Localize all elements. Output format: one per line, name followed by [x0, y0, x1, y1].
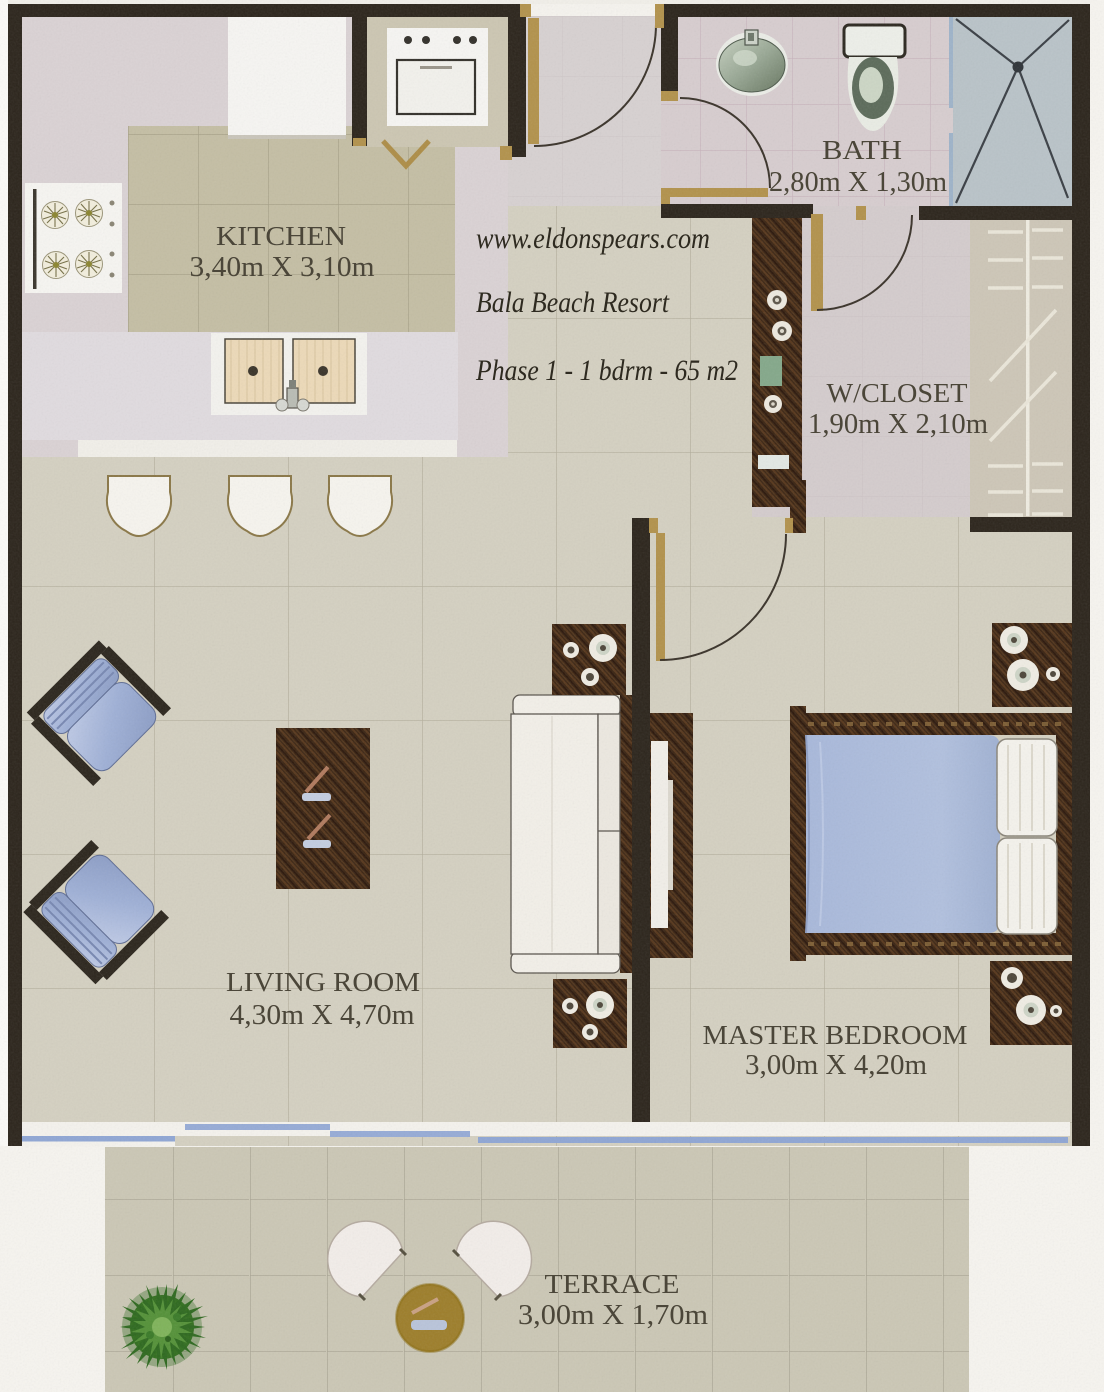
svg-text:3,40m X 3,10m: 3,40m X 3,10m: [190, 252, 375, 283]
svg-text:W/CLOSET: W/CLOSET: [827, 378, 969, 408]
svg-text:www.eldonspears.com: www.eldonspears.com: [476, 222, 710, 255]
svg-text:2,80m X 1,30m: 2,80m X 1,30m: [769, 167, 947, 198]
svg-text:Bala Beach Resort: Bala Beach Resort: [476, 286, 670, 319]
svg-text:1,90m X 2,10m: 1,90m X 2,10m: [808, 409, 988, 440]
svg-text:BATH: BATH: [822, 135, 902, 165]
svg-text:3,00m X 4,20m: 3,00m X 4,20m: [745, 1050, 927, 1081]
svg-text:TERRACE: TERRACE: [545, 1269, 680, 1299]
svg-text:LIVING ROOM: LIVING ROOM: [226, 967, 420, 997]
svg-text:MASTER BEDROOM: MASTER BEDROOM: [703, 1020, 968, 1050]
svg-text:3,00m X 1,70m: 3,00m X 1,70m: [518, 1300, 708, 1331]
svg-text:KITCHEN: KITCHEN: [216, 221, 346, 251]
svg-text:4,30m X 4,70m: 4,30m X 4,70m: [230, 1000, 415, 1031]
svg-text:Phase 1 - 1 bdrm - 65 m2: Phase 1 - 1 bdrm - 65 m2: [475, 354, 738, 387]
